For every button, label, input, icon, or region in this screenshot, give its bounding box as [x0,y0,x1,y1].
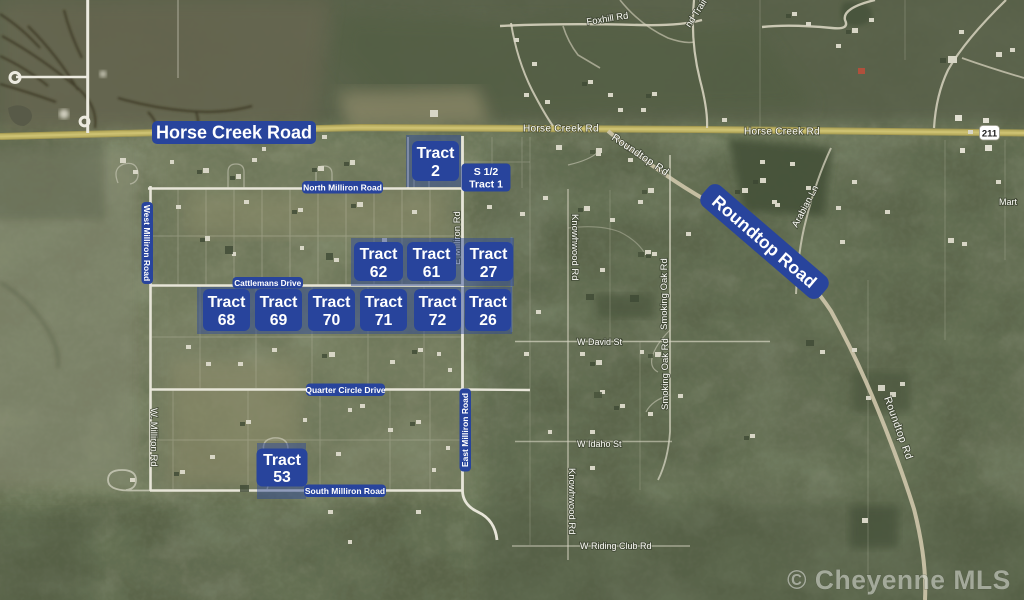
svg-text:S 1/2: S 1/2 [474,166,499,178]
svg-text:Tract: Tract [260,294,298,311]
svg-text:Tract: Tract [263,452,301,469]
svg-text:72: 72 [429,312,447,329]
svg-text:Knowhwood Rd: Knowhwood Rd [566,468,577,535]
svg-text:Tract: Tract [365,294,403,311]
svg-text:Smoking Oak Rd: Smoking Oak Rd [660,338,671,410]
svg-text:Tract: Tract [413,246,451,263]
svg-text:Quarter Circle Drive: Quarter Circle Drive [305,385,386,395]
svg-text:Tract: Tract [470,246,508,263]
svg-text:Horse Creek Rd: Horse Creek Rd [523,124,599,135]
svg-text:W Idaho St: W Idaho St [577,439,622,449]
svg-text:W. Milliron Rd: W. Milliron Rd [148,408,159,467]
svg-text:61: 61 [423,264,441,281]
svg-text:Tract: Tract [208,294,246,311]
svg-text:27: 27 [480,264,498,281]
svg-text:Tract: Tract [419,294,457,311]
svg-text:Knowhwood Rd: Knowhwood Rd [569,214,580,281]
svg-text:26: 26 [479,312,497,329]
svg-text:68: 68 [218,312,236,329]
svg-text:South Milliron Road: South Milliron Road [305,486,385,496]
svg-text:Horse Creek Road: Horse Creek Road [156,123,312,143]
svg-text:© Cheyenne MLS: © Cheyenne MLS [787,565,1011,595]
svg-text:Tract: Tract [313,294,351,311]
svg-text:East Milliron Road: East Milliron Road [460,393,470,467]
svg-text:North Milliron Road: North Milliron Road [303,183,382,193]
svg-text:Tract: Tract [360,246,398,263]
svg-text:W David St: W David St [577,337,623,347]
svg-text:Cattlemans Drive: Cattlemans Drive [234,279,301,288]
svg-text:211: 211 [982,129,998,140]
svg-text:Horse Creek Rd: Horse Creek Rd [744,127,820,138]
svg-text:Smoking Oak Rd: Smoking Oak Rd [659,258,670,330]
svg-text:70: 70 [323,312,341,329]
svg-text:Tract: Tract [469,294,507,311]
svg-text:69: 69 [270,312,288,329]
svg-text:Mart: Mart [999,197,1017,207]
svg-text:53: 53 [273,469,291,486]
svg-text:Tract: Tract [417,145,455,162]
svg-text:W Riding Club Rd: W Riding Club Rd [580,541,652,551]
svg-text:2: 2 [431,163,440,180]
svg-text:62: 62 [370,264,388,281]
svg-text:71: 71 [375,312,393,329]
svg-text:West Milliron Road: West Milliron Road [142,205,152,281]
svg-text:Tract 1: Tract 1 [469,179,503,191]
